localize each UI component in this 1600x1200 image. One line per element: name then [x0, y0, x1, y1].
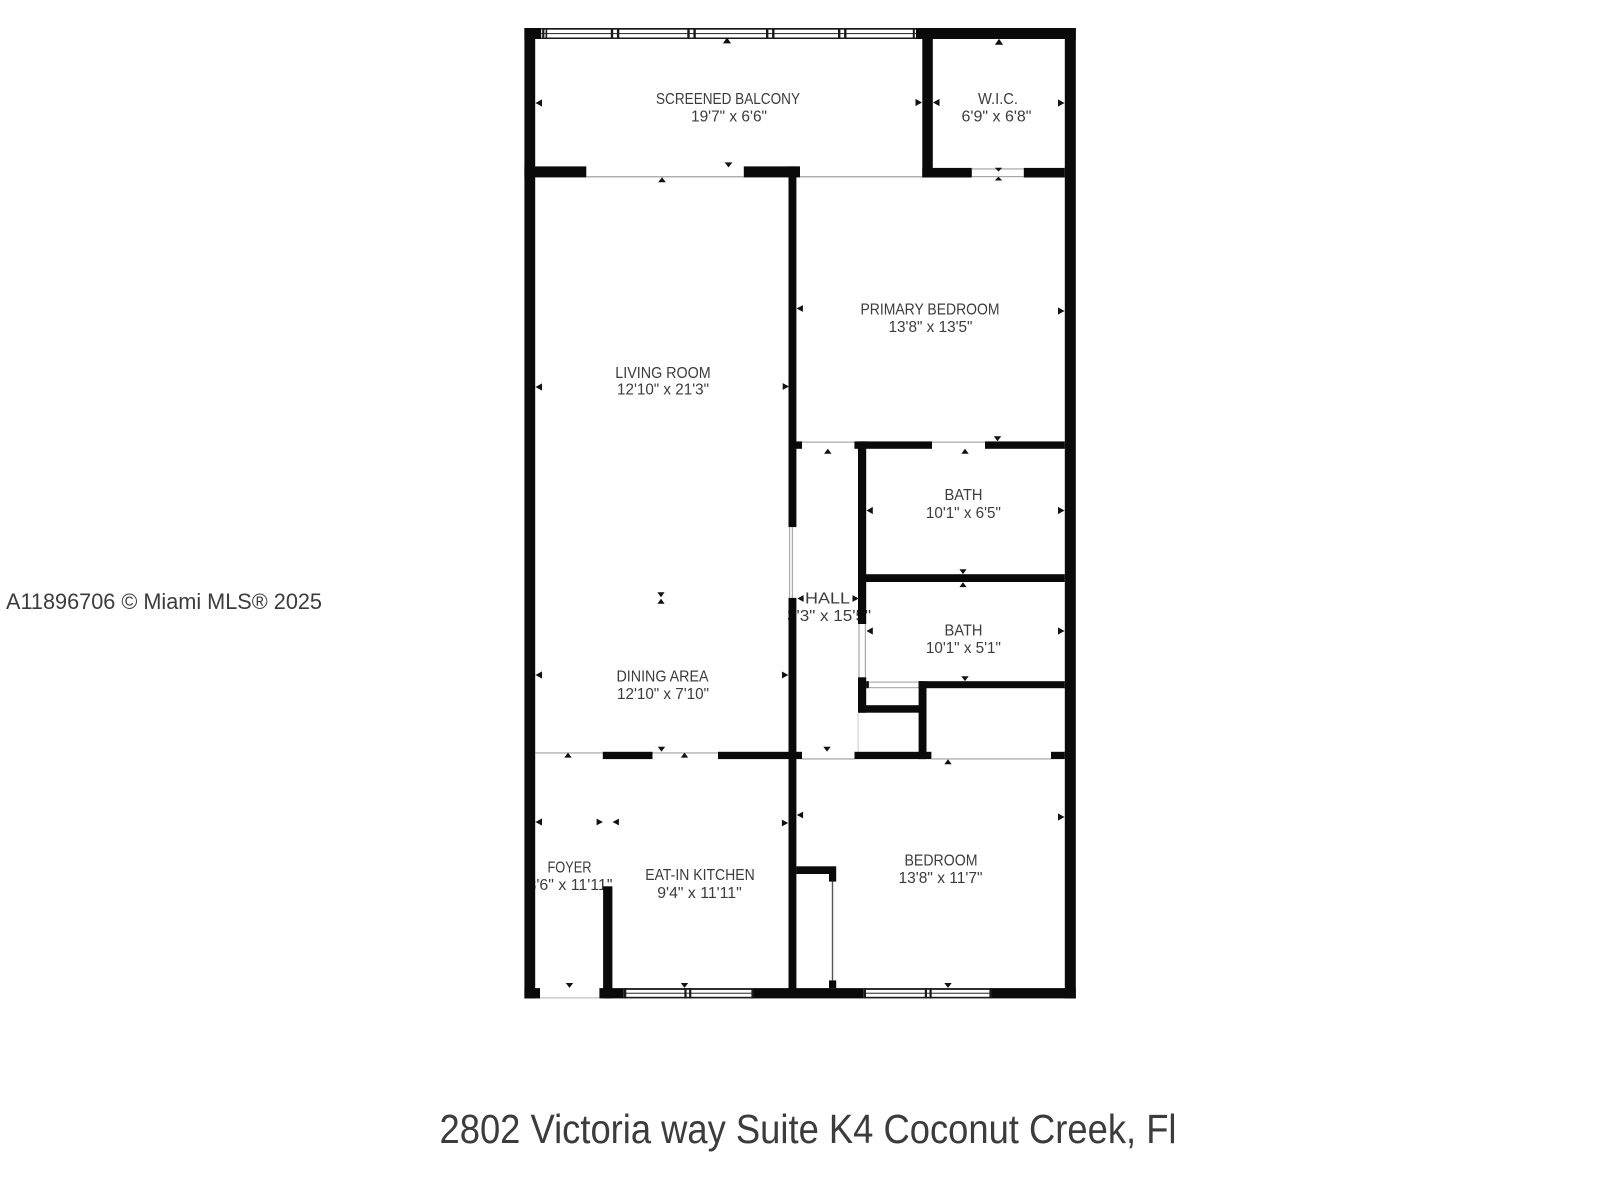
svg-text:13'8" x 11'7": 13'8" x 11'7": [899, 870, 983, 887]
svg-text:W.I.C.: W.I.C.: [978, 91, 1018, 108]
svg-text:10'1" x 5'1": 10'1" x 5'1": [926, 640, 1001, 657]
svg-text:DINING AREA: DINING AREA: [617, 669, 710, 686]
svg-text:A11896706 © Miami MLS® 2025: A11896706 © Miami MLS® 2025: [6, 589, 322, 614]
svg-text:FOYER: FOYER: [548, 860, 592, 877]
svg-text:13'8" x 13'5": 13'8" x 13'5": [889, 319, 973, 336]
svg-text:9'4" x 11'11": 9'4" x 11'11": [657, 885, 742, 902]
svg-text:LIVING ROOM: LIVING ROOM: [615, 365, 711, 382]
svg-text:EAT-IN KITCHEN: EAT-IN KITCHEN: [645, 867, 755, 884]
svg-text:SCREENED BALCONY: SCREENED BALCONY: [656, 91, 800, 108]
svg-text:2802 Victoria way Suite K4 Coc: 2802 Victoria way Suite K4 Coconut Creek…: [440, 1106, 1177, 1152]
svg-text:3'6" x 11'11": 3'6" x 11'11": [528, 877, 613, 894]
svg-text:12'10" x 7'10": 12'10" x 7'10": [617, 686, 709, 703]
svg-text:6'9" x 6'8": 6'9" x 6'8": [962, 109, 1032, 126]
svg-text:BATH: BATH: [945, 487, 983, 504]
svg-text:19'7" x 6'6": 19'7" x 6'6": [691, 109, 767, 126]
svg-text:12'10" x 21'3": 12'10" x 21'3": [617, 382, 709, 399]
svg-text:10'1" x 6'5": 10'1" x 6'5": [926, 505, 1001, 522]
svg-text:BATH: BATH: [945, 623, 983, 640]
svg-text:HALL: HALL: [805, 591, 850, 608]
svg-text:BEDROOM: BEDROOM: [905, 853, 978, 870]
svg-text:PRIMARY BEDROOM: PRIMARY BEDROOM: [861, 302, 1000, 319]
